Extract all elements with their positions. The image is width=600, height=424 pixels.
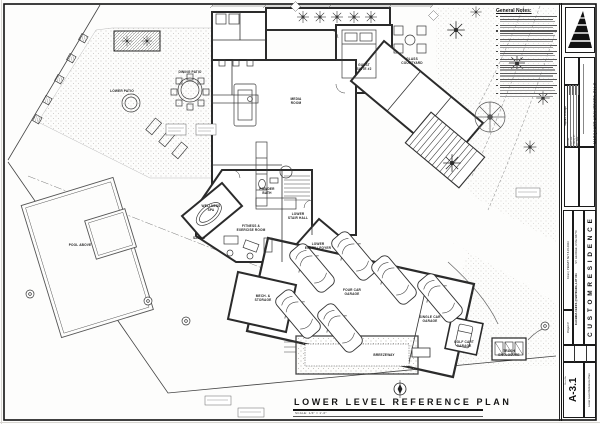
revisions-box — [563, 345, 596, 362]
room-label-four-car-garage: FOUR CARGARAGE — [343, 288, 362, 296]
general-notes: General Notes: — [496, 8, 557, 99]
square-footage-table: Square Footage Main LevelLower LevelTOTA… — [564, 85, 579, 147]
general-note-item — [496, 16, 557, 22]
general-note-item — [496, 30, 557, 36]
general-notes-title: General Notes: — [496, 8, 557, 14]
general-note-item — [496, 79, 557, 82]
sheet-no-label: Sheet No. — [565, 365, 567, 385]
general-note-item — [496, 45, 557, 48]
sheet-name: Lower Level Reference Plan — [585, 363, 596, 417]
general-note-item — [496, 51, 557, 57]
firm-name: MARQUART ARCHITECTS, PLLC — [586, 62, 600, 144]
north-arrow-icon — [394, 380, 406, 398]
room-label-guest-suite: GUESTSUITE #2 — [356, 63, 371, 71]
title-underline-thin — [293, 416, 483, 417]
general-note-item — [496, 39, 557, 42]
address-line-2: ST. GEORGE, UTAH 84770 — [575, 230, 578, 263]
project-address: KACHINA CLIFFS @ ENTRADA, LOT #41 ST. GE… — [574, 211, 584, 344]
room-label-mech-storage: MECH. &STORAGE — [255, 294, 272, 302]
general-notes-list — [496, 16, 557, 96]
titleblock-empty-box — [564, 57, 579, 85]
general-note-item — [496, 93, 557, 96]
sheet-name-box: Lower Level Reference Plan — [584, 362, 596, 418]
plan-scale: SCALE: 1/4" = 1'-0" — [295, 411, 327, 415]
palm-tree-icon — [475, 102, 505, 132]
project-name: C U S T O M R E S I D E N C E — [585, 211, 596, 344]
address-line-1: KACHINA CLIFFS @ ENTRADA, LOT #41 — [575, 273, 578, 325]
general-note-item — [496, 73, 557, 76]
pyramid-logo-icon — [566, 8, 594, 52]
room-label-media-room: MEDIAROOM — [290, 97, 302, 105]
firm-logo-box — [565, 7, 595, 53]
project-number-label: Project # — [564, 311, 573, 344]
sheet-number: A-3.1 — [564, 363, 584, 417]
firm-box: MARQUART ARCHITECTS, PLLC — [579, 57, 595, 147]
sheet-number-box: A-3.1 Sheet No. — [563, 362, 584, 418]
room-label-dining-patio: DINING PATIO — [178, 70, 201, 74]
general-note-item — [496, 65, 557, 71]
room-label-sauna: SAUNA — [193, 236, 206, 240]
project-number-box: Project # — [563, 310, 573, 345]
room-label-breezeway: BREEZEWAY — [373, 353, 395, 357]
room-label-golf-cart-garage: GOLF CARTGARAGE — [454, 340, 474, 348]
permit-box: KCa1 | PERMIT SET 8.15.2023 — [563, 210, 573, 310]
titleblock-empty-box — [579, 147, 595, 207]
general-note-item — [496, 85, 557, 91]
drawing-sheet: .room-label{font-family:"Liberation Sans… — [0, 0, 600, 424]
project-address-box: KACHINA CLIFFS @ ENTRADA, LOT #41 ST. GE… — [573, 210, 584, 345]
room-label-lower-patio: LOWER PATIO — [110, 89, 134, 93]
general-note-item — [496, 25, 557, 28]
firm-address-greek — [583, 64, 584, 134]
titleblock-divider — [561, 3, 562, 421]
permit-text: KCa1 | PERMIT SET 8.15.2023 — [564, 211, 573, 309]
titleblock-empty-box — [564, 147, 579, 207]
project-name-box: C U S T O M R E S I D E N C E — [584, 210, 596, 345]
plan-title: LOWER LEVEL REFERENCE PLAN — [294, 397, 511, 407]
titleblock-divider — [559, 3, 560, 421]
room-label-pool-above: POOL ABOVE — [69, 243, 92, 247]
pool-above-outline — [21, 177, 153, 337]
general-note-item — [496, 59, 557, 62]
